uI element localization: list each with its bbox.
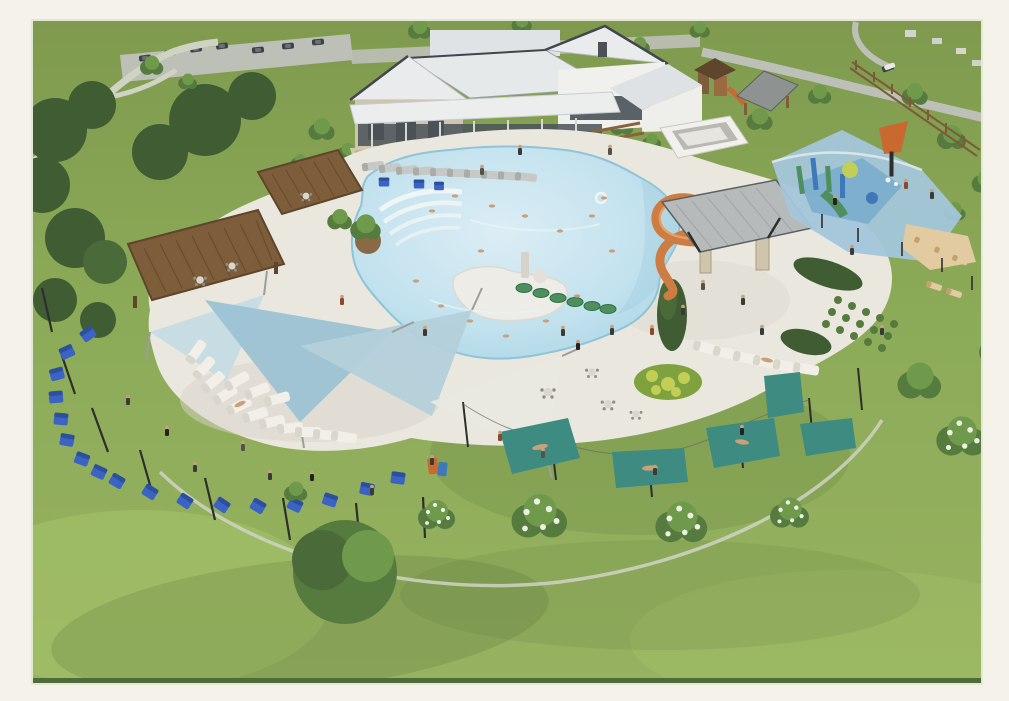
person — [370, 485, 374, 495]
person — [518, 145, 522, 155]
flower-bed — [634, 364, 702, 400]
swimmer — [452, 194, 458, 197]
swimmer — [503, 334, 509, 337]
adirondack-chair — [54, 412, 69, 425]
person — [610, 325, 614, 335]
person — [193, 462, 197, 472]
swimmer — [429, 209, 435, 212]
person — [340, 295, 344, 305]
person — [576, 340, 580, 350]
swimmer — [413, 279, 419, 282]
swimmer — [478, 249, 484, 252]
person — [608, 145, 612, 155]
person — [423, 326, 427, 336]
tree-shadow — [400, 540, 920, 650]
person — [650, 325, 654, 335]
adirondack-chair — [390, 471, 406, 485]
person — [701, 280, 705, 290]
swimmer — [522, 214, 528, 217]
hammock-banner — [764, 372, 804, 418]
photo-bottom-edge — [33, 678, 981, 683]
person — [741, 295, 745, 305]
person — [833, 195, 837, 205]
shrub — [342, 530, 394, 582]
person — [653, 465, 657, 475]
island-table — [533, 269, 547, 283]
swimmer — [574, 294, 580, 297]
person — [126, 395, 130, 405]
person — [268, 470, 272, 480]
screenshot — [0, 0, 1009, 701]
swimmer — [609, 249, 615, 252]
swimmer — [589, 214, 595, 217]
attic-vent — [598, 42, 607, 57]
photo — [0, 15, 1009, 701]
person — [904, 179, 908, 189]
person — [241, 441, 245, 451]
person — [498, 431, 502, 441]
swimmer — [438, 304, 444, 307]
person — [561, 326, 565, 336]
person — [880, 325, 884, 335]
swimmer — [557, 229, 563, 232]
person — [541, 448, 545, 458]
car — [282, 42, 295, 49]
kid-chair — [379, 178, 390, 187]
kid-chair — [414, 180, 425, 189]
person — [310, 471, 314, 481]
adirondack-chair — [49, 390, 64, 403]
car — [312, 38, 325, 45]
person — [850, 245, 854, 255]
swimmer — [467, 319, 473, 322]
person — [480, 165, 484, 175]
person — [760, 325, 764, 335]
adirondack-chair — [59, 433, 75, 447]
person — [740, 425, 744, 435]
island-pillar — [521, 252, 529, 278]
person — [930, 189, 934, 199]
kid-chair — [434, 182, 444, 190]
car — [252, 46, 265, 53]
swimmer — [543, 319, 549, 322]
swimmer — [489, 204, 495, 207]
swimmer — [601, 196, 607, 199]
person — [681, 305, 685, 315]
person — [430, 455, 434, 465]
rendering-canvas — [0, 0, 1009, 701]
person — [165, 426, 169, 436]
